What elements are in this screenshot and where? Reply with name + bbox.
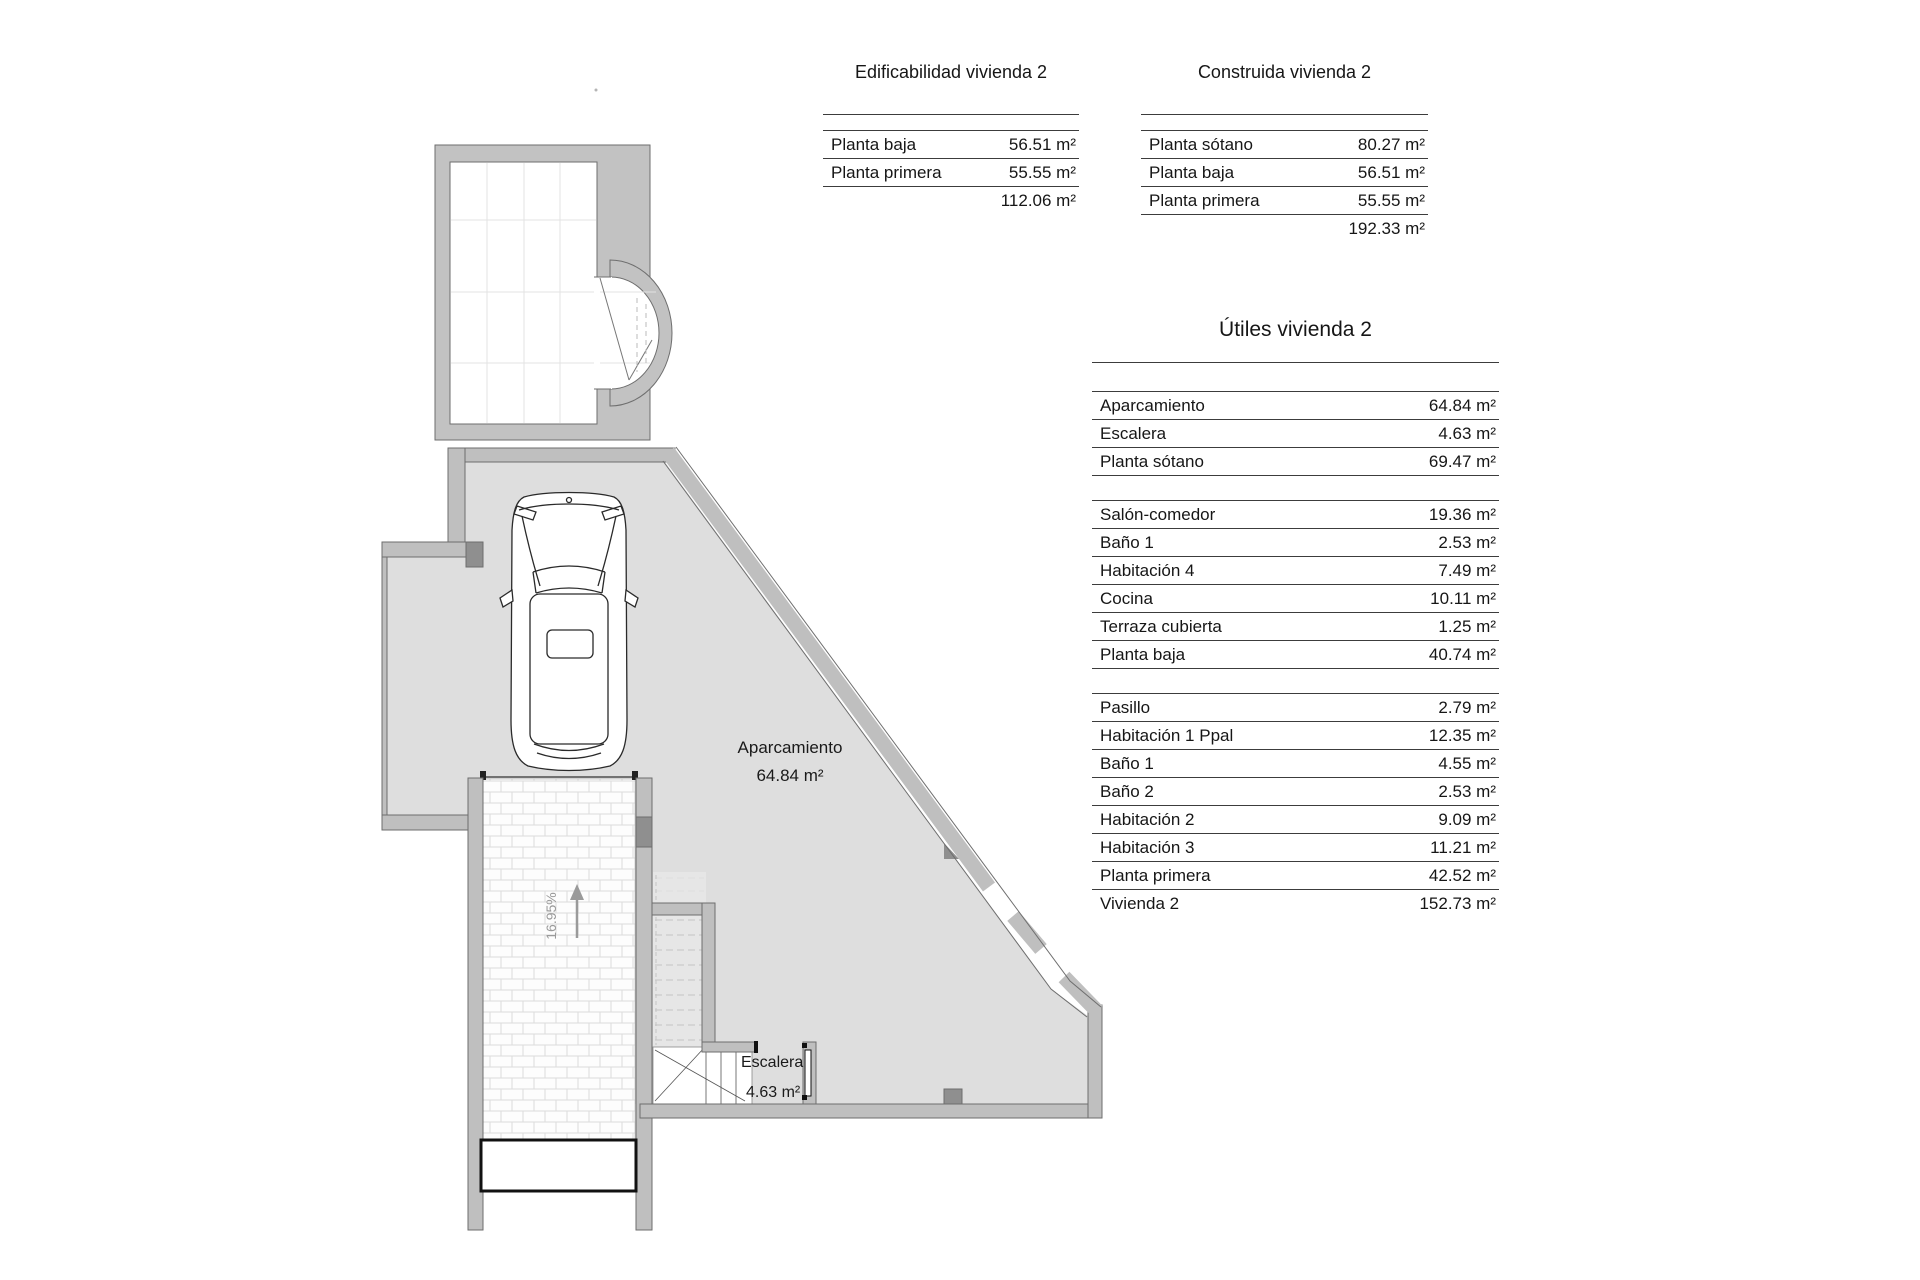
- group-gap: [1092, 669, 1499, 693]
- area-value: 69.47 m²: [1429, 448, 1499, 475]
- table-body: Aparcamiento 64.84 m² Escalera 4.63 m² P…: [1092, 391, 1499, 918]
- table-row: Habitación 2 9.09 m²: [1092, 806, 1499, 834]
- utiles-group-planta-primera: Pasillo 2.79 m² Habitación 1 Ppal 12.35 …: [1092, 693, 1499, 918]
- table-row: Terraza cubierta 1.25 m²: [1092, 613, 1499, 641]
- table-body: Planta sótano 80.27 m² Planta baja 56.51…: [1141, 130, 1428, 243]
- table-row: Baño 1 4.55 m²: [1092, 750, 1499, 778]
- area-label: Planta primera: [823, 159, 942, 186]
- area-value: 12.35 m²: [1429, 722, 1499, 749]
- area-value: 11.21 m²: [1430, 834, 1499, 861]
- area-value: 2.79 m²: [1438, 694, 1499, 721]
- area-value: 80.27 m²: [1358, 131, 1428, 158]
- construida-table: Construida vivienda 2 Planta sótano 80.2…: [1141, 60, 1428, 250]
- table-body: Planta baja 56.51 m² Planta primera 55.5…: [823, 130, 1079, 215]
- table-row: Escalera 4.63 m²: [1092, 420, 1499, 448]
- area-value: 4.55 m²: [1438, 750, 1499, 777]
- title-underline: [1141, 114, 1428, 115]
- area-value: 40.74 m²: [1429, 641, 1499, 668]
- table-total-row: 192.33 m²: [1141, 215, 1428, 243]
- table-row: Planta baja 40.74 m²: [1092, 641, 1499, 669]
- area-label: Salón-comedor: [1092, 501, 1215, 528]
- area-label: [1141, 215, 1149, 243]
- table-row: Cocina 10.11 m²: [1092, 585, 1499, 613]
- area-label: Pasillo: [1092, 694, 1150, 721]
- area-value: 10.11 m²: [1430, 585, 1499, 612]
- area-label: Planta baja: [1141, 159, 1234, 186]
- terrace-tile-grid: [451, 163, 596, 423]
- area-label: Habitación 4: [1092, 557, 1195, 584]
- area-label: Cocina: [1092, 585, 1153, 612]
- area-value: 9.09 m²: [1438, 806, 1499, 833]
- parking-area-label: 64.84 m²: [756, 766, 823, 785]
- area-label: Habitación 2: [1092, 806, 1195, 833]
- area-value: 7.49 m²: [1438, 557, 1499, 584]
- area-total-value: 192.33 m²: [1348, 215, 1428, 243]
- utiles-table: Útiles vivienda 2 Aparcamiento 64.84 m² …: [1092, 316, 1499, 926]
- area-label: Baño 1: [1092, 750, 1154, 777]
- terrace-structure: [435, 145, 672, 440]
- table-row: Salón-comedor 19.36 m²: [1092, 501, 1499, 529]
- area-label: Planta baja: [823, 131, 916, 158]
- stray-dot: [595, 89, 598, 92]
- garage-door: [481, 1140, 636, 1191]
- utiles-group-planta-baja: Salón-comedor 19.36 m² Baño 1 2.53 m² Ha…: [1092, 500, 1499, 669]
- area-value: 56.51 m²: [1358, 159, 1428, 186]
- area-label: Planta baja: [1092, 641, 1185, 668]
- area-total-value: 112.06 m²: [1001, 187, 1079, 215]
- table-row: Baño 1 2.53 m²: [1092, 529, 1499, 557]
- utiles-group-sotano: Aparcamiento 64.84 m² Escalera 4.63 m² P…: [1092, 391, 1499, 476]
- area-value: 55.55 m²: [1358, 187, 1428, 214]
- floorplan-page: { "colors": { "wall_gray": "#bfbfbf", "w…: [0, 0, 1920, 1280]
- area-label: Terraza cubierta: [1092, 613, 1222, 640]
- parking-label: Aparcamiento: [738, 738, 843, 757]
- area-value: 19.36 m²: [1429, 501, 1499, 528]
- table-row: Planta sótano 69.47 m²: [1092, 448, 1499, 476]
- area-label: Habitación 3: [1092, 834, 1195, 861]
- area-label: Planta sótano: [1092, 448, 1204, 475]
- area-label: Escalera: [1092, 420, 1166, 447]
- edificabilidad-table: Edificabilidad vivienda 2 Planta baja 56…: [823, 60, 1079, 220]
- table-row: Planta baja 56.51 m²: [823, 131, 1079, 159]
- table-row: Aparcamiento 64.84 m²: [1092, 392, 1499, 420]
- area-value: 4.63 m²: [1438, 420, 1499, 447]
- area-value: 64.84 m²: [1429, 392, 1499, 419]
- stairs-area-label: 4.63 m²: [746, 1084, 801, 1101]
- table-row: Pasillo 2.79 m²: [1092, 694, 1499, 722]
- area-value: 55.55 m²: [1009, 159, 1079, 186]
- title-underline: [1092, 362, 1499, 363]
- area-label: Planta sótano: [1141, 131, 1253, 158]
- stairs-label: Escalera: [741, 1054, 803, 1071]
- table-row: Planta sótano 80.27 m²: [1141, 131, 1428, 159]
- door-leaf: [805, 1050, 811, 1096]
- table-row: Habitación 1 Ppal 12.35 m²: [1092, 722, 1499, 750]
- area-value: 42.52 m²: [1429, 862, 1499, 889]
- car-ramp: [480, 771, 638, 1139]
- area-label: Aparcamiento: [1092, 392, 1205, 419]
- table-row: Habitación 3 11.21 m²: [1092, 834, 1499, 862]
- title-underline: [823, 114, 1079, 115]
- area-label: [823, 187, 831, 215]
- area-label: Planta primera: [1092, 862, 1211, 889]
- area-label: Planta primera: [1141, 187, 1260, 214]
- area-value: 2.53 m²: [1438, 778, 1499, 805]
- area-label: Habitación 1 Ppal: [1092, 722, 1233, 749]
- group-gap: [1092, 476, 1499, 500]
- table-row: Planta primera 55.55 m²: [1141, 187, 1428, 215]
- area-label: Baño 1: [1092, 529, 1154, 556]
- table-total-row: Vivienda 2 152.73 m²: [1092, 890, 1499, 918]
- curved-stair-bay: [594, 260, 672, 406]
- table-total-row: 112.06 m²: [823, 187, 1079, 215]
- table-title: Útiles vivienda 2: [1092, 316, 1499, 344]
- table-row: Planta primera 55.55 m²: [823, 159, 1079, 187]
- area-value: 2.53 m²: [1438, 529, 1499, 556]
- table-row: Habitación 4 7.49 m²: [1092, 557, 1499, 585]
- table-row: Planta baja 56.51 m²: [1141, 159, 1428, 187]
- ramp-slope-label: 16.95%: [543, 892, 559, 939]
- area-total-value: 152.73 m²: [1419, 890, 1499, 918]
- column: [944, 1089, 962, 1104]
- table-row: Planta primera 42.52 m²: [1092, 862, 1499, 890]
- table-title: Construida vivienda 2: [1141, 60, 1428, 84]
- area-value: 1.25 m²: [1438, 613, 1499, 640]
- area-value: 56.51 m²: [1009, 131, 1079, 158]
- table-row: Baño 2 2.53 m²: [1092, 778, 1499, 806]
- area-label: Baño 2: [1092, 778, 1154, 805]
- area-label: Vivienda 2: [1092, 890, 1179, 918]
- car-top-view: [500, 493, 638, 771]
- table-title: Edificabilidad vivienda 2: [823, 60, 1079, 84]
